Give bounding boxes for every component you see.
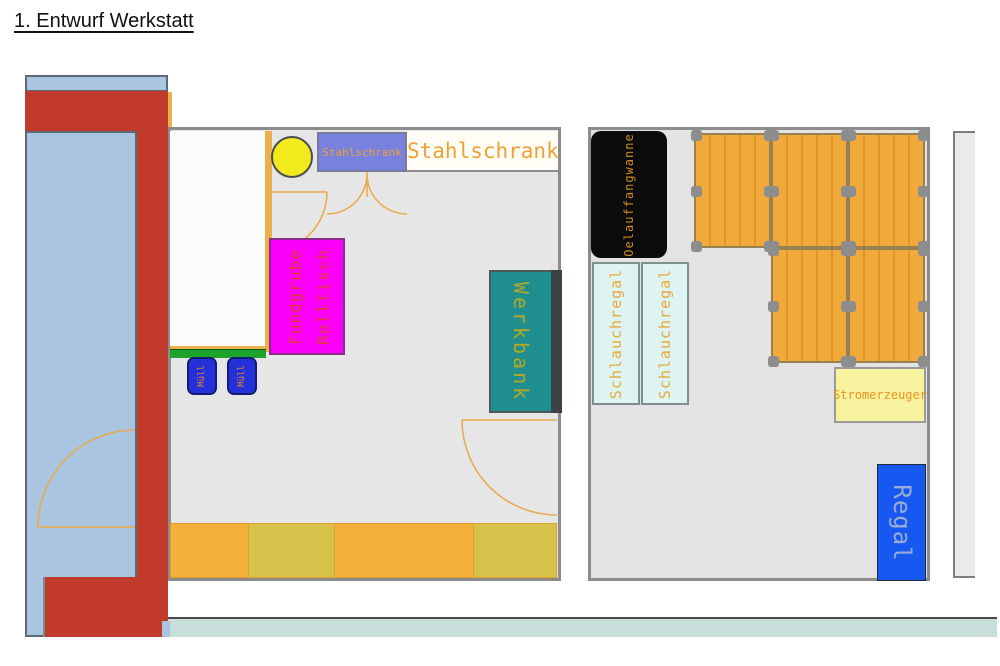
table-foot bbox=[918, 186, 929, 197]
hose-rack: Schlauchregal bbox=[592, 262, 640, 405]
table-foot bbox=[768, 301, 779, 312]
table-foot bbox=[918, 356, 929, 367]
adjacent-wall-strip bbox=[953, 131, 975, 578]
table-foot bbox=[845, 186, 856, 197]
table-foot bbox=[768, 130, 779, 141]
table-foot bbox=[691, 186, 702, 197]
red-wall-bottom bbox=[43, 577, 168, 637]
rolltisch-label: Rolltisch bbox=[313, 249, 332, 345]
trash-bin: Müll bbox=[227, 357, 257, 395]
steel-cabinet-label: Stahlschrank bbox=[407, 139, 558, 163]
table-foot bbox=[918, 245, 929, 256]
power-generator-label: Stromerzeuger bbox=[833, 388, 927, 402]
oil-drip-pan: Oelauffangwanne bbox=[591, 131, 667, 258]
trash-bin: Müll bbox=[187, 357, 217, 395]
fundgrube-label: Fundgrube bbox=[286, 249, 305, 345]
trash-bin-label: Müll bbox=[237, 365, 247, 387]
bottom-cabinet-olive bbox=[248, 523, 335, 578]
round-object bbox=[271, 136, 313, 178]
work-table bbox=[694, 133, 771, 248]
table-foot bbox=[691, 130, 702, 141]
bottom-cabinet-olive bbox=[473, 523, 557, 578]
page-title: 1. Entwurf Werkstatt bbox=[14, 10, 194, 33]
trash-bin-label: Müll bbox=[197, 365, 207, 387]
workshop-floorplan: 1. Entwurf Werkstatt Stahlschrank Stahls… bbox=[0, 0, 1000, 666]
table-foot bbox=[845, 356, 856, 367]
work-table bbox=[848, 248, 925, 363]
workbench: Werkbank bbox=[489, 270, 553, 413]
power-generator: Stromerzeuger bbox=[834, 367, 926, 423]
blue-notch bbox=[162, 621, 170, 637]
workbench-backboard bbox=[551, 270, 562, 413]
red-wall-vertical bbox=[137, 131, 168, 577]
entrance-blue-area bbox=[25, 131, 137, 637]
work-table bbox=[771, 248, 848, 363]
pit-subroom bbox=[170, 131, 272, 352]
shelf-label: Regal bbox=[888, 484, 916, 561]
shelf: Regal bbox=[877, 464, 926, 581]
hose-rack-label: Schlauchregal bbox=[607, 268, 625, 398]
steel-cabinet-box: Stahlschrank bbox=[317, 132, 407, 172]
red-wall-top bbox=[25, 91, 168, 131]
table-foot bbox=[918, 130, 929, 141]
table-foot bbox=[845, 301, 856, 312]
workbench-label: Werkbank bbox=[509, 281, 533, 401]
table-foot bbox=[691, 241, 702, 252]
fundgrube-rolltisch-box: Fundgrube Rolltisch bbox=[269, 238, 345, 355]
work-table bbox=[848, 133, 925, 248]
table-foot bbox=[768, 186, 779, 197]
hose-rack-label: Schlauchregal bbox=[656, 268, 674, 398]
work-table bbox=[771, 133, 848, 248]
table-foot bbox=[845, 245, 856, 256]
bottom-corridor-band bbox=[168, 617, 997, 637]
table-foot bbox=[768, 245, 779, 256]
wall-top-blue-strip bbox=[25, 75, 168, 92]
table-foot bbox=[918, 301, 929, 312]
steel-cabinet-box-label: Stahlschrank bbox=[322, 146, 401, 159]
table-foot bbox=[845, 130, 856, 141]
table-foot bbox=[768, 356, 779, 367]
oil-drip-pan-label: Oelauffangwanne bbox=[622, 133, 636, 256]
hose-rack: Schlauchregal bbox=[641, 262, 689, 405]
cabinet-text-strip: Stahlschrank bbox=[407, 131, 558, 172]
